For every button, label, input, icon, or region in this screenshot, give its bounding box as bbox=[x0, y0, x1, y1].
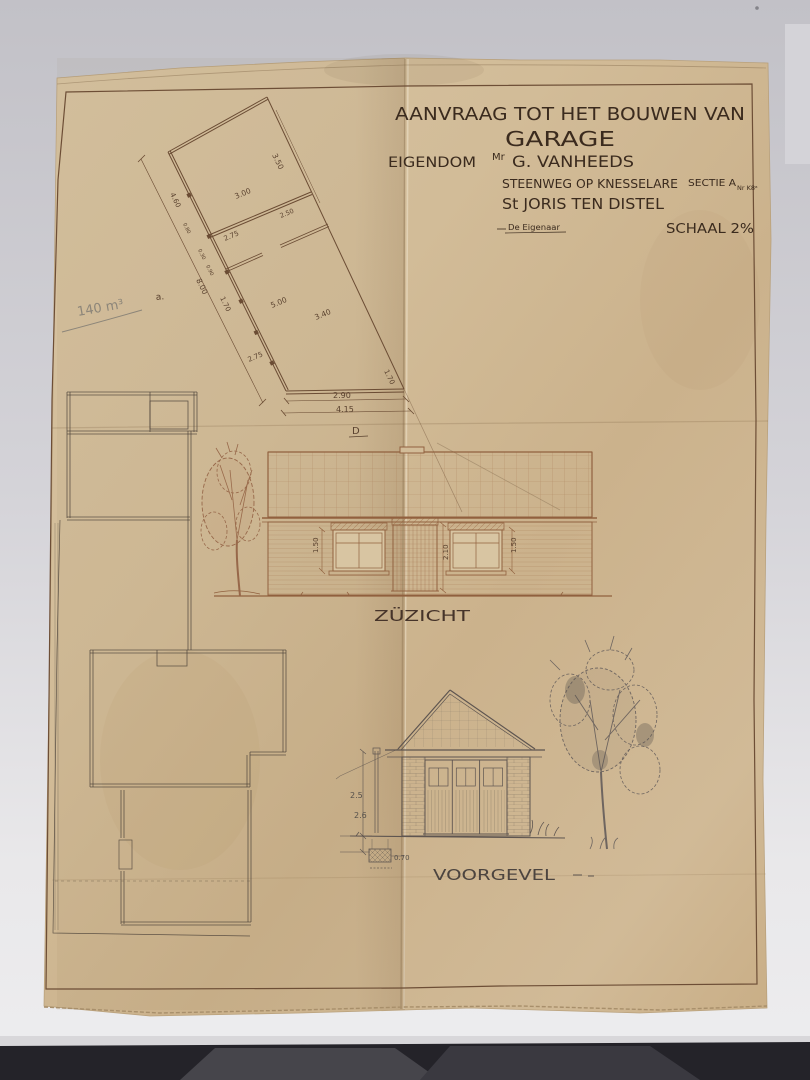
ridge-detail bbox=[400, 447, 424, 453]
front-elevation-title: VOORGEVEL bbox=[433, 866, 556, 884]
owner-title: Mr bbox=[492, 152, 506, 163]
dim-door: 2.10 bbox=[442, 544, 450, 560]
dim-window-left: 1.50 bbox=[312, 537, 320, 553]
background-object bbox=[785, 24, 810, 164]
photo-of-architectural-drawing: AANVRAAG TOT HET BOUWEN VAN GARAGE EIGEN… bbox=[0, 0, 810, 1080]
window-left bbox=[329, 523, 389, 575]
signature-label: De Eigenaar bbox=[508, 223, 561, 232]
title-line-1: AANVRAAG TOT HET BOUWEN VAN bbox=[395, 104, 745, 125]
cadastral-section: SECTIE A bbox=[688, 178, 736, 189]
locality: St JORIS TEN DISTEL bbox=[502, 195, 665, 213]
drawing-scene: AANVRAAG TOT HET BOUWEN VAN GARAGE EIGEN… bbox=[0, 0, 810, 1080]
roof-tiles bbox=[268, 452, 592, 517]
point-label-a: a. bbox=[155, 292, 164, 303]
dim-label: 4.15 bbox=[336, 405, 354, 414]
owner-label: EIGENDOM bbox=[388, 155, 476, 171]
dim-foundation: 0.70 bbox=[394, 854, 410, 862]
street-address: STEENWEG OP KNESSELARE bbox=[502, 176, 678, 191]
dim-label: 2.90 bbox=[333, 391, 351, 400]
owner-name: G. VANHEEDS bbox=[512, 152, 634, 171]
dim-height-upper: 2.5 bbox=[350, 791, 363, 800]
point-label-d: D bbox=[352, 426, 360, 437]
window-right bbox=[446, 523, 506, 575]
cadastral-section-number: Nr K8ᵃ bbox=[737, 184, 758, 192]
title-line-2: GARAGE bbox=[505, 127, 615, 151]
side-elevation-title: ZÜZICHT bbox=[374, 606, 471, 625]
scale-label: SCHAAL 2% bbox=[666, 222, 754, 237]
dim-window-right: 1.50 bbox=[510, 537, 518, 553]
entrance-door bbox=[391, 518, 439, 591]
dim-height-lower: 2.6 bbox=[354, 811, 367, 820]
